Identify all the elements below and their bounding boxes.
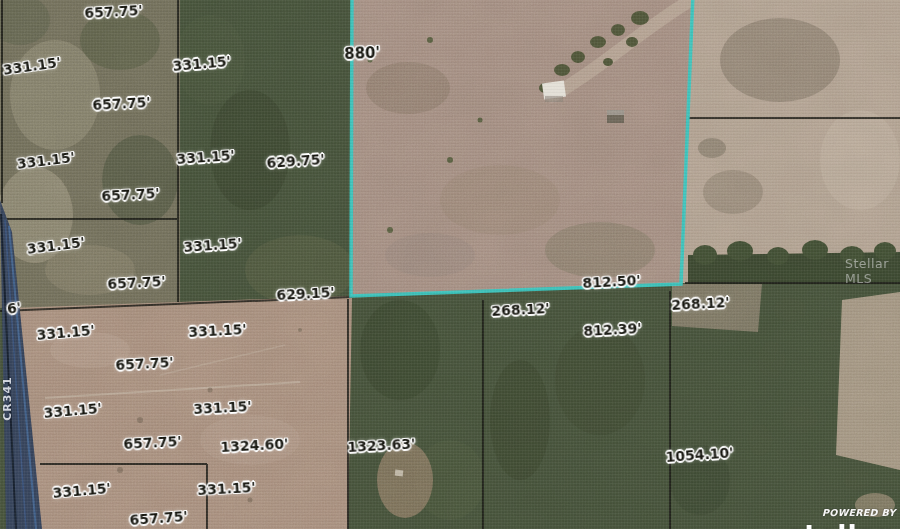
measurement-label: 331.15' — [197, 479, 256, 498]
measurement-label: 657.75' — [84, 2, 143, 21]
mls-logo-partial: stellar — [787, 519, 891, 529]
measurement-label: 268.12' — [671, 294, 730, 313]
mls-watermark: Stellar MLS — [845, 256, 900, 286]
measurement-label: 812.50' — [582, 272, 641, 291]
listing-map-screenshot: 657.75' 331.15' 331.15' 657.75' 331.15' … — [0, 0, 900, 529]
road-name-label: CR341 — [1, 375, 14, 423]
measurement-label: 880' — [344, 45, 380, 62]
measurement-label: 6' — [6, 299, 22, 317]
measurement-label: 331.15' — [188, 321, 247, 340]
measurement-label: 657.75' — [101, 185, 160, 204]
measurement-label: 657.75' — [115, 354, 174, 373]
measurement-label: 657.75' — [123, 433, 182, 452]
measurement-label: 331.15' — [193, 398, 252, 417]
measurement-label: 657.75' — [92, 94, 151, 113]
measurement-label: 629.15' — [276, 284, 335, 303]
measurement-label: 812.39' — [583, 320, 642, 339]
measurement-label: 268.12' — [491, 300, 550, 319]
measurement-label: 657.75' — [107, 273, 166, 292]
powered-by-label: POWERED BY — [822, 507, 896, 518]
